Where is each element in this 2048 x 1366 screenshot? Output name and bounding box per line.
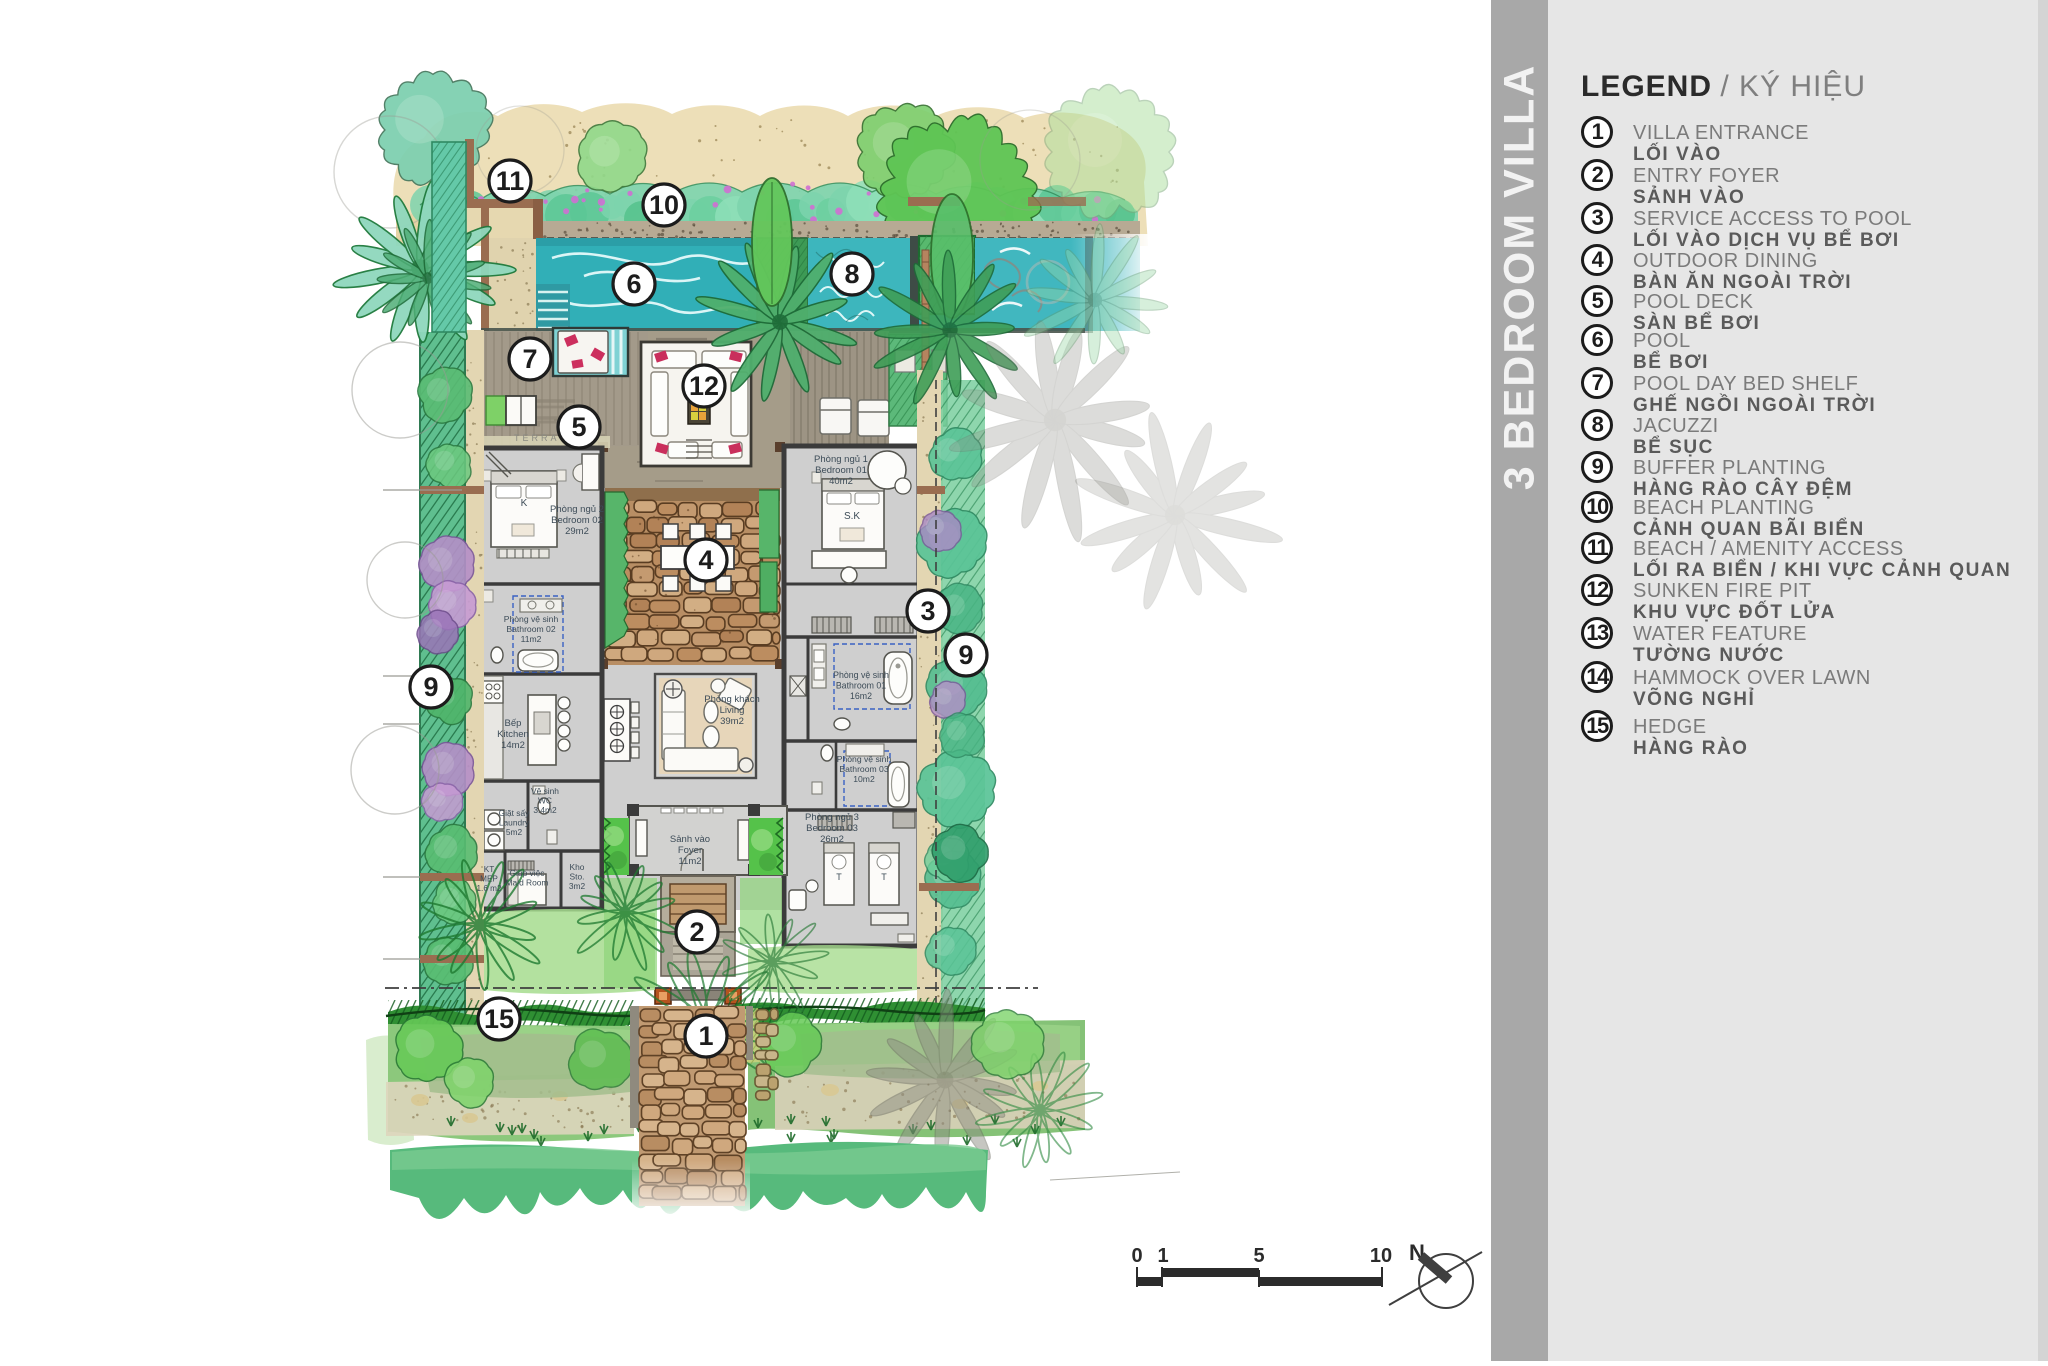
svg-text:K: K [521, 498, 528, 509]
svg-text:6: 6 [626, 269, 641, 299]
svg-text:9: 9 [958, 640, 973, 670]
svg-text:12: 12 [689, 371, 719, 401]
svg-text:4: 4 [698, 545, 713, 575]
svg-text:0: 0 [1131, 1245, 1142, 1267]
svg-text:8: 8 [844, 259, 859, 289]
svg-text:1: 1 [698, 1021, 713, 1051]
svg-text:7: 7 [522, 344, 537, 374]
svg-text:T: T [881, 872, 887, 882]
svg-text:Giúp việcMaid Room: Giúp việcMaid Room [506, 868, 549, 888]
svg-text:KhoSto.3m2: KhoSto.3m2 [569, 862, 586, 891]
svg-text:2: 2 [689, 917, 704, 947]
svg-text:1: 1 [1157, 1245, 1168, 1267]
svg-text:11: 11 [496, 166, 525, 196]
svg-text:9: 9 [423, 672, 438, 702]
svg-text:T: T [836, 872, 842, 882]
svg-text:5: 5 [1253, 1245, 1264, 1267]
svg-text:10: 10 [1370, 1245, 1392, 1267]
svg-text:10: 10 [649, 190, 679, 220]
svg-text:15: 15 [484, 1004, 514, 1034]
svg-text:3: 3 [920, 596, 935, 626]
svg-text:5: 5 [571, 412, 586, 442]
svg-text:S.K: S.K [844, 511, 860, 522]
